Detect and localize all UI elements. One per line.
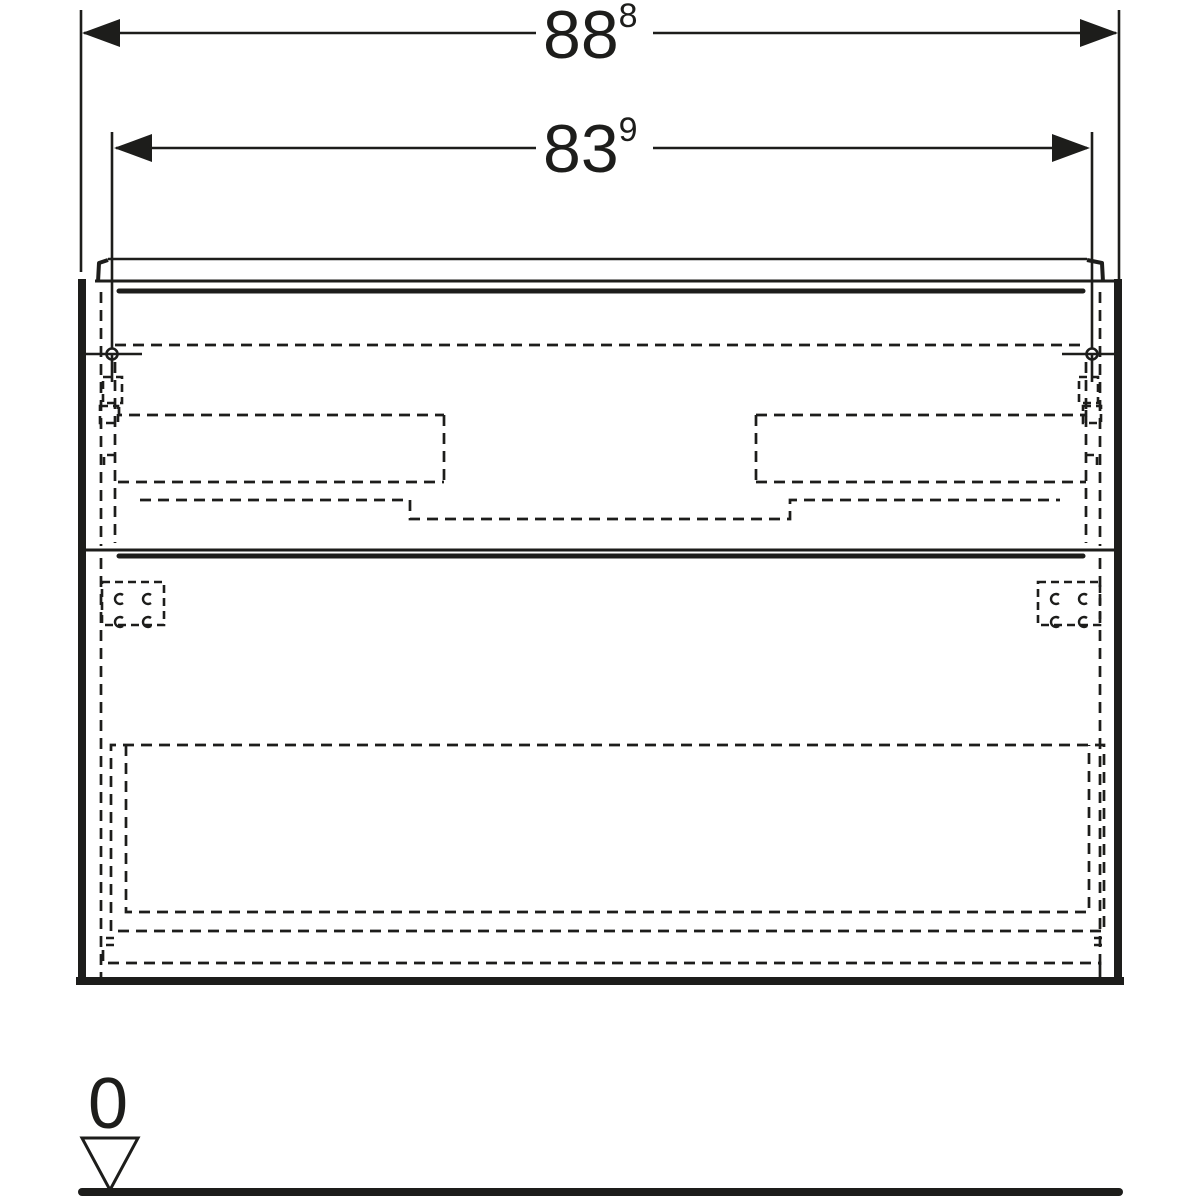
runner-mark-left-hidden — [106, 938, 116, 945]
countertop-left-edge — [98, 260, 108, 282]
datum-triangle-icon — [82, 1138, 138, 1190]
screw-hole-icon — [1079, 594, 1087, 604]
dimension-superscript: 9 — [619, 111, 638, 149]
technical-drawing-page: 888 839 — [0, 0, 1200, 1200]
mounting-plate-right-screw-holes — [1051, 594, 1087, 627]
runner-step-left-hidden — [104, 455, 115, 470]
drawer-box-inner-hidden — [126, 745, 1089, 912]
cabinet-carcass — [80, 283, 1120, 981]
runner-step-right-hidden — [1086, 455, 1097, 470]
fixing-screw-right — [1062, 349, 1119, 383]
fixing-screw-left — [85, 349, 142, 383]
arrowhead-left-icon — [82, 19, 120, 47]
screw-hole-icon — [1051, 594, 1059, 604]
dimension-value: 88 — [543, 0, 619, 73]
countertop-right-edge — [1087, 260, 1103, 282]
drawer-box-outer-hidden — [111, 745, 1104, 931]
screw-hole-icon — [115, 594, 123, 604]
dimension-value: 83 — [543, 111, 619, 187]
vanity-cabinet-front-elevation: 888 839 — [0, 0, 1200, 1200]
arrowhead-right-icon — [1080, 19, 1118, 47]
cabinet-inner-bottom-hidden — [103, 950, 1100, 978]
countertop-slab — [95, 259, 1118, 291]
mounting-plate-right — [1038, 582, 1100, 625]
arrowhead-right-icon — [1052, 134, 1090, 162]
dimension-label-fixing: 839 — [543, 111, 638, 187]
lower-drawer-hidden-edges — [101, 558, 1104, 978]
dimension-superscript: 8 — [619, 0, 638, 35]
floor-datum: 0 — [82, 1064, 1119, 1192]
siphon-cutout-bottom-hidden — [140, 500, 1060, 519]
mounting-plate-left — [102, 582, 164, 625]
drawer-top-right-hidden — [756, 407, 1086, 415]
dimension-fixing-width: 839 — [112, 111, 1092, 349]
upper-drawer-hidden-edges — [100, 292, 1101, 546]
runner-bracket-right-upper — [1079, 377, 1098, 403]
mounting-plate-left-screw-holes — [115, 594, 151, 627]
arrowhead-left-icon — [114, 134, 152, 162]
drawer-top-left-hidden — [119, 407, 444, 415]
datum-level-label: 0 — [88, 1064, 128, 1144]
screw-hole-icon — [143, 594, 151, 604]
dimension-label-overall: 888 — [543, 0, 638, 73]
